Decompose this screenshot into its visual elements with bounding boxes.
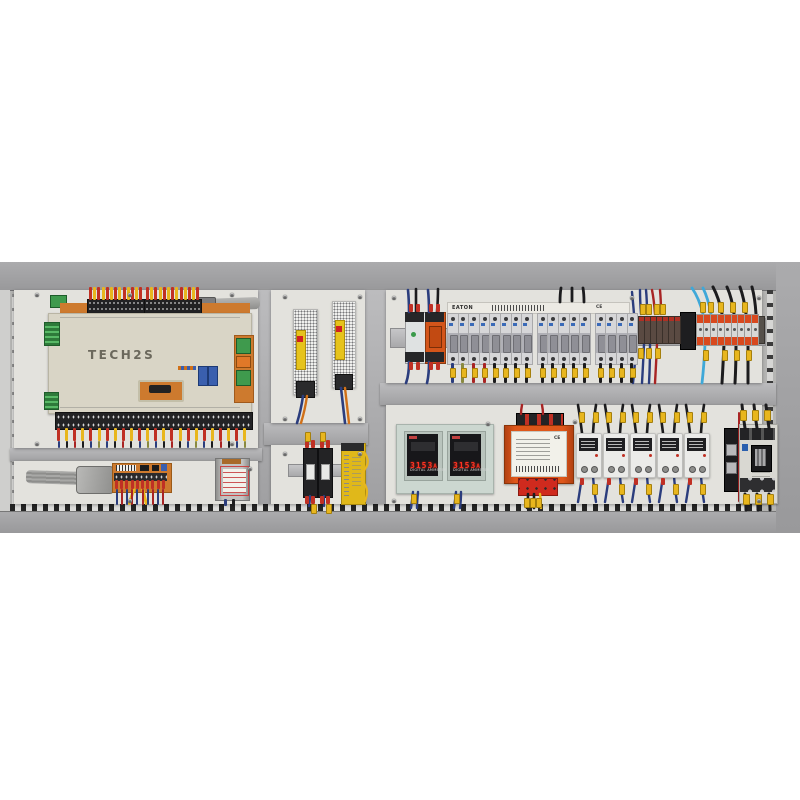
breaker-toggle	[629, 335, 637, 353]
yellow-sleeve	[411, 494, 417, 504]
plc-bottom-wire	[163, 441, 165, 448]
yellow-sleeve	[743, 494, 750, 505]
yellow-sleeve	[606, 412, 612, 423]
panel-screw	[573, 420, 577, 424]
ssr-led	[595, 454, 598, 457]
red-ferrule	[580, 478, 584, 485]
pcb-ferrule	[125, 480, 128, 489]
wires-middle	[270, 290, 366, 505]
ssr-led	[676, 454, 679, 457]
breaker-top-screw	[562, 317, 566, 321]
terminal-dark-mark	[675, 317, 680, 321]
ssr-screw-right	[591, 466, 598, 473]
plc-bottom-ferrule	[211, 428, 214, 441]
small-transformer-label	[220, 466, 249, 496]
breaker-pole-mark	[481, 323, 485, 326]
terminal-clamp-top	[752, 315, 758, 323]
ssr-led	[703, 454, 706, 457]
circuit-breaker	[627, 313, 639, 365]
small-transformer-wire-1	[224, 499, 227, 506]
plc-bottom-ferrule	[187, 428, 190, 441]
red-ferrule	[429, 362, 433, 370]
ssr-screw-left	[662, 466, 669, 473]
plc-bottom-ferrule	[227, 428, 230, 441]
panel-screw	[392, 296, 396, 300]
ssr-led	[649, 454, 652, 457]
plc-top-ferrule	[184, 287, 187, 300]
yellow-sleeve	[630, 368, 636, 378]
yellow-sleeve	[514, 368, 520, 378]
plc-right-green-2	[236, 370, 251, 386]
yellow-sleeve	[619, 368, 625, 378]
plc-bottom-wire	[171, 441, 173, 448]
terminal-screw	[740, 328, 743, 331]
breaker-toggle	[540, 335, 548, 353]
breaker-toggle	[460, 335, 468, 353]
ssr-label-text	[581, 441, 595, 448]
plc-bottom-ferrule	[89, 428, 92, 441]
plc-bottom-ferrule	[170, 428, 173, 441]
plc-left-connector-1	[44, 322, 60, 346]
breaker-toggle	[561, 335, 569, 353]
plc-bottom-ferrule	[81, 428, 84, 441]
terminal-screw	[726, 328, 729, 331]
breaker-bottom-screw	[620, 357, 624, 361]
yellow-sleeve	[742, 302, 748, 313]
pcb-ic-1	[140, 465, 149, 471]
red-ferrule	[305, 496, 309, 504]
plc-bottom-wire	[139, 441, 141, 448]
terminal-clamp-bottom	[752, 337, 758, 345]
plc-bottom-wire	[187, 441, 189, 448]
plc-top-ferrule	[192, 287, 195, 300]
yellow-sleeve	[700, 302, 706, 313]
panel-screw	[757, 499, 761, 503]
solid-state-relay	[630, 433, 656, 478]
yellow-sleeve	[718, 302, 724, 313]
plc-bottom-ferrule	[146, 428, 149, 441]
yellow-sleeve	[687, 412, 693, 423]
yellow-sleeve	[730, 302, 736, 313]
breaker-toggle	[450, 335, 458, 353]
plc-bottom-ferrule	[65, 428, 68, 441]
breaker-toggle	[513, 335, 521, 353]
pcb-ferrule	[146, 480, 149, 489]
pcb-wire	[162, 489, 164, 505]
yellow-sleeve	[579, 412, 585, 423]
plc-bottom-ferrule	[122, 428, 125, 441]
yellow-sleeve	[674, 412, 680, 423]
terminal-screw	[719, 328, 722, 331]
panel-screw	[283, 417, 287, 421]
plc-top-ferrule	[180, 287, 183, 300]
yellow-sleeve	[461, 368, 467, 378]
plc-top-ferrule	[167, 287, 170, 300]
yellow-sleeve	[561, 368, 567, 378]
breaker-pole-mark	[581, 323, 585, 326]
plc-bottom-ferrule	[219, 428, 222, 441]
panel-screw	[230, 442, 234, 446]
plc-top-ferrule	[196, 287, 199, 300]
red-ferrule	[416, 304, 420, 312]
plc-bottom-wire	[106, 441, 108, 448]
yellow-sleeve	[583, 368, 589, 378]
breaker-top-screw	[504, 317, 508, 321]
circuit-breaker	[521, 313, 533, 365]
yellow-sleeve	[525, 368, 531, 378]
red-ferrule	[311, 440, 315, 448]
breaker-top-screw	[514, 317, 518, 321]
yellow-sleeve	[646, 484, 652, 495]
yellow-sleeve	[646, 348, 652, 359]
breaker-pole-mark	[449, 323, 453, 326]
solid-state-relay	[603, 433, 629, 478]
plc-terminal-strip-2	[144, 299, 202, 314]
plc-led-row	[178, 366, 196, 370]
breaker-pole-mark	[629, 323, 633, 326]
ssr-label	[660, 438, 679, 451]
plc-top-ferrule	[89, 287, 92, 300]
circuit-breaker	[579, 313, 591, 365]
plc-label-row-bottom	[60, 407, 240, 410]
yellow-sleeve	[454, 494, 460, 504]
breaker-pole-mark	[470, 323, 474, 326]
panel-screw	[358, 295, 362, 299]
red-ferrule	[429, 304, 433, 312]
breaker-top-screw	[620, 317, 624, 321]
ssr-led	[622, 454, 625, 457]
pcb-ferrule	[120, 480, 123, 489]
yellow-sleeve	[572, 368, 578, 378]
pcb-ferrule	[157, 480, 160, 489]
pcb-wire	[136, 489, 138, 505]
breaker-bottom-screw	[451, 357, 455, 361]
plc-top-ferrule	[106, 287, 109, 300]
pcb-wire	[157, 489, 159, 505]
breaker-pole-mark	[460, 323, 464, 326]
breaker-toggle	[503, 335, 511, 353]
pcb-ferrule	[162, 480, 165, 489]
panel-screw	[128, 499, 132, 503]
terminal-screw	[747, 328, 750, 331]
plc-bottom-ferrule	[243, 428, 246, 441]
terminal-screw	[712, 328, 715, 331]
red-ferrule	[688, 478, 692, 485]
pcb-ferrule	[115, 480, 118, 489]
plc-bottom-wire	[114, 441, 116, 448]
yellow-sleeve	[305, 432, 311, 442]
breaker-top-screw	[541, 317, 545, 321]
solid-state-relay	[684, 433, 710, 478]
yellow-sleeve	[311, 504, 317, 514]
pcb-ferrule	[131, 480, 134, 489]
breaker-toggle	[471, 335, 479, 353]
breaker-toggle	[492, 335, 500, 353]
plc-top-ferrule	[159, 287, 162, 300]
breaker-toggle	[608, 335, 616, 353]
yellow-sleeve	[722, 350, 728, 361]
ssr-screw-right	[699, 466, 706, 473]
breaker-bottom-screw	[525, 357, 529, 361]
pcb-ferrule	[141, 480, 144, 489]
plc-bottom-ferrule	[114, 428, 117, 441]
yellow-sleeve	[551, 368, 557, 378]
ssr-label-text	[662, 441, 676, 448]
plc-top-ferrule	[188, 287, 191, 300]
red-ferrule	[416, 362, 420, 370]
yellow-sleeve	[320, 432, 326, 442]
red-ferrule	[409, 362, 413, 370]
ssr-label-text	[635, 441, 649, 448]
pcb-wire	[142, 489, 144, 505]
pcb-dip-block	[116, 465, 136, 471]
breaker-top-screw	[551, 317, 555, 321]
red-ferrule	[607, 478, 611, 485]
breaker-bottom-screw	[609, 357, 613, 361]
yellow-sleeve	[646, 304, 652, 315]
pcb-ic-2	[152, 465, 159, 471]
breaker-pole-mark	[502, 323, 506, 326]
terminal-screw	[733, 328, 736, 331]
yellow-sleeve	[767, 494, 774, 505]
ssr-label	[606, 438, 625, 451]
yellow-sleeve	[764, 410, 771, 421]
plc-bottom-ferrule	[57, 428, 60, 441]
yellow-sleeve	[450, 368, 456, 378]
ssr-screw-left	[635, 466, 642, 473]
yellow-sleeve	[472, 368, 478, 378]
yellow-sleeve	[734, 350, 740, 361]
breaker-pole-mark	[539, 323, 543, 326]
yellow-sleeve	[638, 348, 644, 359]
small-transformer-coil	[222, 459, 241, 464]
panel-screw	[35, 442, 39, 446]
plc-bottom-ferrule	[73, 428, 76, 441]
plc-label-row-top	[60, 317, 240, 320]
panel-screw	[128, 293, 132, 297]
yellow-sleeve	[620, 412, 626, 423]
pcb-ferrule	[136, 480, 139, 489]
plc-bottom-wire	[122, 441, 124, 448]
yellow-sleeve	[326, 504, 332, 514]
pcb-wire	[147, 489, 149, 505]
ssr-screw-right	[645, 466, 652, 473]
red-ferrule	[326, 440, 330, 448]
plc-terminal-strip-1	[87, 299, 145, 314]
plc-bottom-ferrule	[203, 428, 206, 441]
breaker-top-screw	[572, 317, 576, 321]
breaker-pole-mark	[560, 323, 564, 326]
red-ferrule	[634, 478, 638, 485]
breaker-pole-mark	[607, 323, 611, 326]
solid-state-relay	[576, 433, 602, 478]
breaker-pole-mark	[618, 323, 622, 326]
panel-screw	[486, 422, 490, 426]
red-ferrule	[326, 496, 330, 504]
yellow-sleeve	[703, 350, 709, 361]
breaker-pole-mark	[523, 323, 527, 326]
panel-screw	[283, 452, 287, 456]
plc-top-ferrule	[110, 287, 113, 300]
panel-screw	[358, 452, 362, 456]
breaker-top-screw	[599, 317, 603, 321]
breaker-toggle	[582, 335, 590, 353]
page: TECH2S	[0, 0, 800, 800]
ssr-screw-left	[581, 466, 588, 473]
plc-bottom-ferrule	[162, 428, 165, 441]
breaker-top-screw	[472, 317, 476, 321]
plc-top-ferrule	[135, 287, 138, 300]
plc-bottom-wire	[147, 441, 149, 448]
yellow-sleeve	[633, 412, 639, 423]
plc-top-ferrule	[118, 287, 121, 300]
breaker-bottom-screw	[599, 357, 603, 361]
breaker-pole-mark	[491, 323, 495, 326]
dsub-connector-hood	[76, 466, 114, 494]
plc-bottom-wire	[98, 441, 100, 448]
yellow-sleeve	[598, 368, 604, 378]
plc-dip-slider	[149, 385, 171, 393]
red-ferrule	[320, 496, 324, 504]
red-ferrule	[311, 496, 315, 504]
yellow-sleeve	[609, 368, 615, 378]
plc-right-orange-header	[236, 356, 251, 368]
panel-screw	[757, 296, 761, 300]
yellow-sleeve	[660, 304, 666, 315]
breaker-top-screw	[609, 317, 613, 321]
ssr-label-text	[689, 441, 703, 448]
breaker-top-screw	[461, 317, 465, 321]
plc-bottom-wire	[220, 441, 222, 448]
plc-top-ferrule	[114, 287, 117, 300]
pcb-wire	[116, 489, 118, 505]
small-transformer-wire-2	[232, 499, 235, 506]
plc-bottom-wire	[66, 441, 68, 448]
breaker-toggle	[619, 335, 627, 353]
panel-screw	[358, 417, 362, 421]
terminal-screw	[699, 328, 702, 331]
ribbon-cable	[26, 470, 80, 485]
breaker-bottom-screw	[583, 357, 587, 361]
plc-right-green-1	[236, 338, 251, 354]
yellow-sleeve	[593, 412, 599, 423]
plc-top-ferrule	[150, 287, 153, 300]
ssr-screw-right	[672, 466, 679, 473]
pcb-blue-part	[161, 464, 167, 471]
frame-left-edge	[0, 290, 10, 511]
panel-screw	[283, 295, 287, 299]
yellow-sleeve	[655, 348, 661, 359]
panel-screw	[392, 499, 396, 503]
plc-bottom-ferrule	[235, 428, 238, 441]
plc-bottom-ferrule	[179, 428, 182, 441]
plc-bottom-wire	[179, 441, 181, 448]
panel-screw	[630, 296, 634, 300]
breaker-top-screw	[483, 317, 487, 321]
yellow-sleeve	[752, 410, 759, 421]
pcb-wire	[131, 489, 133, 505]
plc-bottom-wire	[74, 441, 76, 448]
breaker-bottom-screw	[504, 357, 508, 361]
yellow-sleeve	[536, 498, 542, 508]
breaker-bottom-screw	[562, 357, 566, 361]
yellow-sleeve	[746, 350, 752, 361]
breaker-toggle	[524, 335, 532, 353]
ssr-screw-left	[608, 466, 615, 473]
breaker-toggle	[571, 335, 579, 353]
terminal-screw	[705, 328, 708, 331]
breaker-pole-mark	[549, 323, 553, 326]
plc-bottom-wire	[244, 441, 246, 448]
panel-screw	[230, 293, 234, 297]
yellow-sleeve	[701, 412, 707, 423]
plc-top-ferrule	[175, 287, 178, 300]
yellow-sleeve	[700, 484, 706, 495]
terminal-screw	[754, 328, 757, 331]
breaker-bottom-screw	[493, 357, 497, 361]
plc-bottom-ferrule	[195, 428, 198, 441]
plc-bottom-wire	[236, 441, 238, 448]
ssr-label-text	[608, 441, 622, 448]
breaker-bottom-screw	[572, 357, 576, 361]
frame-right-rail	[776, 262, 800, 532]
plc-bottom-ferrule	[106, 428, 109, 441]
breaker-pole-mark	[571, 323, 575, 326]
breaker-toggle	[550, 335, 558, 353]
pcb-wire	[126, 489, 128, 505]
panel-screw	[248, 467, 252, 471]
breaker-toggle	[482, 335, 490, 353]
yellow-sleeve	[540, 368, 546, 378]
yellow-sleeve	[660, 412, 666, 423]
plc-blue-jumper-2	[208, 366, 218, 386]
yellow-sleeve	[503, 368, 509, 378]
panel-screw	[35, 293, 39, 297]
yellow-sleeve	[482, 368, 488, 378]
plc-top-ferrule	[171, 287, 174, 300]
breaker-pole-mark	[513, 323, 517, 326]
solid-state-relay	[657, 433, 683, 478]
pcb-wire	[152, 489, 154, 505]
breaker-top-screw	[451, 317, 455, 321]
plc-top-ferrule	[139, 287, 142, 300]
plc-bottom-wire	[58, 441, 60, 448]
breaker-bottom-screw	[472, 357, 476, 361]
pcb-wire	[121, 489, 123, 505]
ssr-label	[633, 438, 652, 451]
plc-bottom-wire	[90, 441, 92, 448]
breaker-bottom-screw	[541, 357, 545, 361]
plc-top-ferrule	[163, 287, 166, 300]
plc-top-ferrule	[123, 287, 126, 300]
breaker-bottom-screw	[514, 357, 518, 361]
terminal-block-dark	[674, 316, 681, 344]
frame-bottom-rail	[0, 511, 800, 533]
red-ferrule	[409, 304, 413, 312]
red-ferrule	[436, 362, 440, 370]
breaker-toggle	[598, 335, 606, 353]
plc-bottom-wire	[155, 441, 157, 448]
plc-model-label: TECH2S	[88, 348, 155, 362]
plc-top-ferrule	[93, 287, 96, 300]
plc-bottom-ferrule	[130, 428, 133, 441]
plc-bottom-ferrule	[138, 428, 141, 441]
yellow-sleeve	[619, 484, 625, 495]
control-panel-photo: TECH2S	[0, 262, 800, 532]
breaker-bottom-screw	[630, 357, 634, 361]
ssr-screw-left	[689, 466, 696, 473]
ssr-label	[687, 438, 706, 451]
